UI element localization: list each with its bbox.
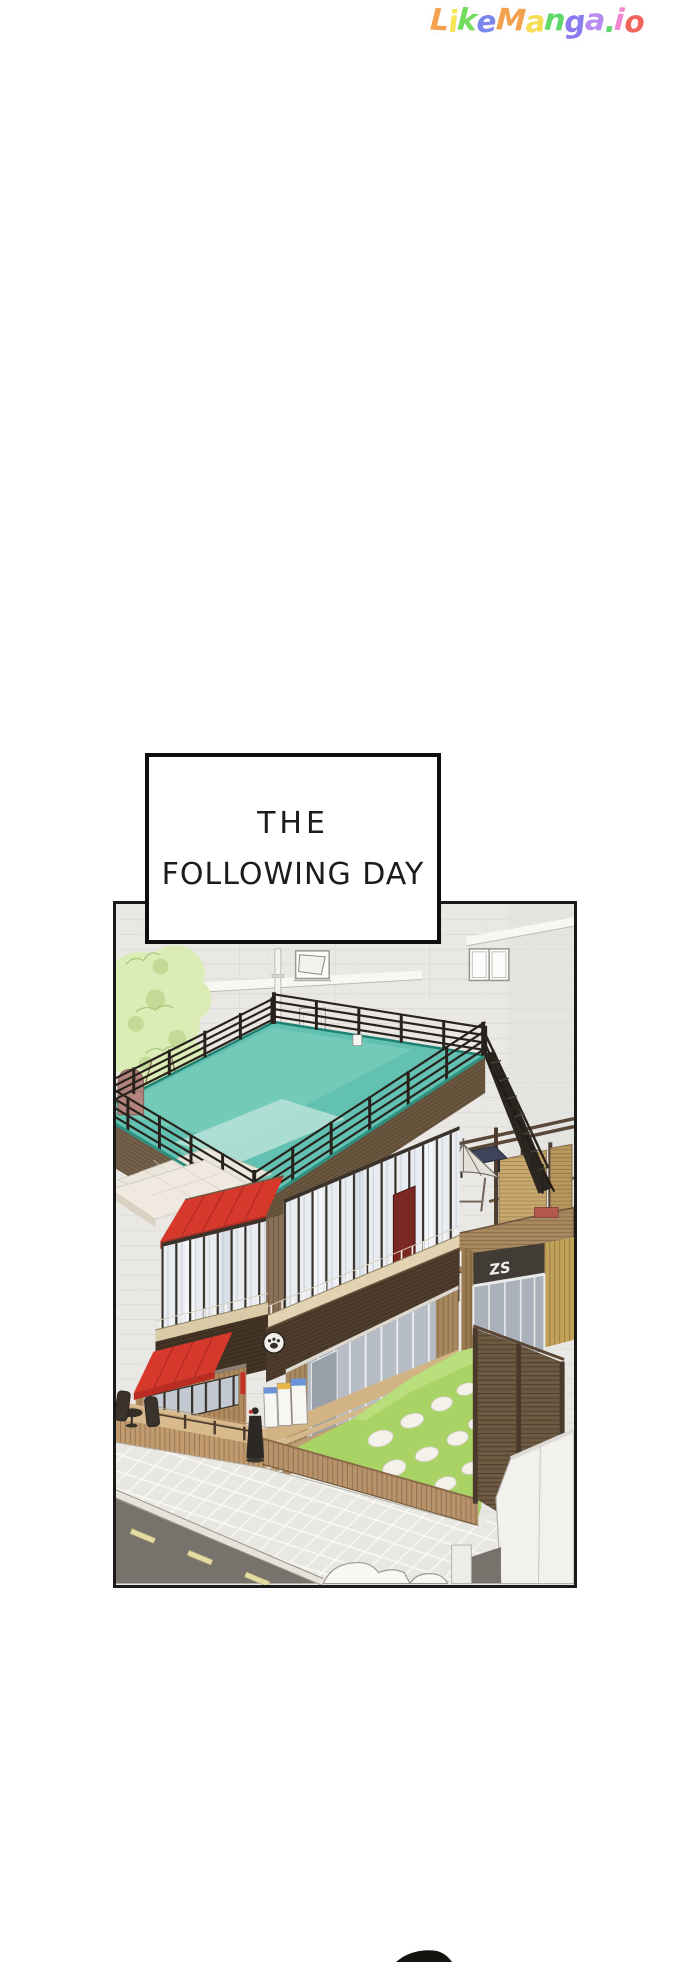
logo-letter: g	[563, 4, 586, 41]
cafe-logo	[264, 1332, 285, 1353]
logo-letter: o	[622, 4, 645, 41]
roof-vent-box	[353, 1035, 362, 1046]
logo-letter: M	[495, 2, 526, 38]
wall-window-open	[294, 951, 332, 981]
logo-letter: a	[584, 3, 605, 39]
illustration-panel: ZS	[113, 901, 577, 1588]
caption-line-2: FOLLOWING DAY	[162, 857, 425, 892]
caption-box: THE FOLLOWING DAY	[145, 753, 441, 944]
caption-line-1: THE	[257, 806, 329, 841]
storefront-sign-text: ZS	[487, 1259, 512, 1279]
logo-letter: e	[475, 4, 497, 41]
building-scene-illustration: ZS	[116, 904, 574, 1585]
logo-letter: a	[523, 4, 545, 41]
wall-window	[469, 949, 508, 981]
red-banner	[240, 1372, 245, 1394]
site-logo[interactable]: LikeManga.io	[430, 4, 643, 44]
manga-page: LikeManga.io	[0, 0, 700, 1962]
next-panel-fragment	[394, 1948, 458, 1962]
